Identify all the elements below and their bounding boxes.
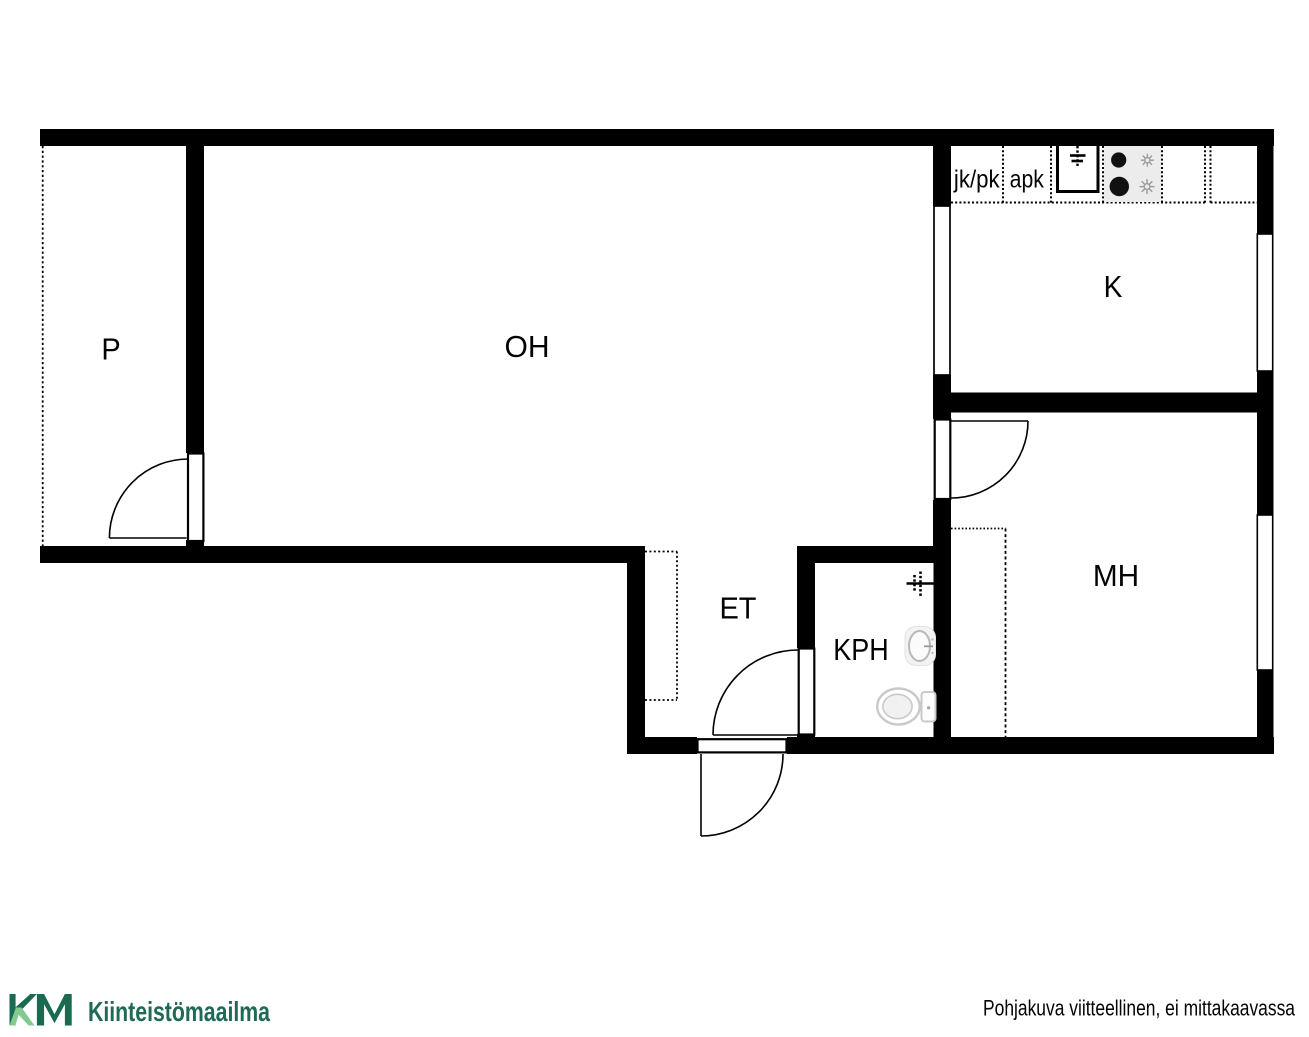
svg-text:apk: apk — [1010, 165, 1045, 193]
svg-text:ET: ET — [719, 592, 756, 626]
svg-text:MH: MH — [1093, 558, 1139, 593]
svg-text:Pohjakuva viitteellinen, ei mi: Pohjakuva viitteellinen, ei mittakaavass… — [983, 996, 1295, 1021]
svg-text:KPH: KPH — [833, 633, 888, 667]
svg-text:OH: OH — [504, 330, 549, 365]
svg-text:K: K — [1104, 270, 1123, 305]
svg-text:P: P — [101, 333, 120, 367]
svg-text:jk/pk: jk/pk — [953, 166, 1000, 193]
svg-text:Kiinteistömaailma: Kiinteistömaailma — [88, 996, 271, 1027]
